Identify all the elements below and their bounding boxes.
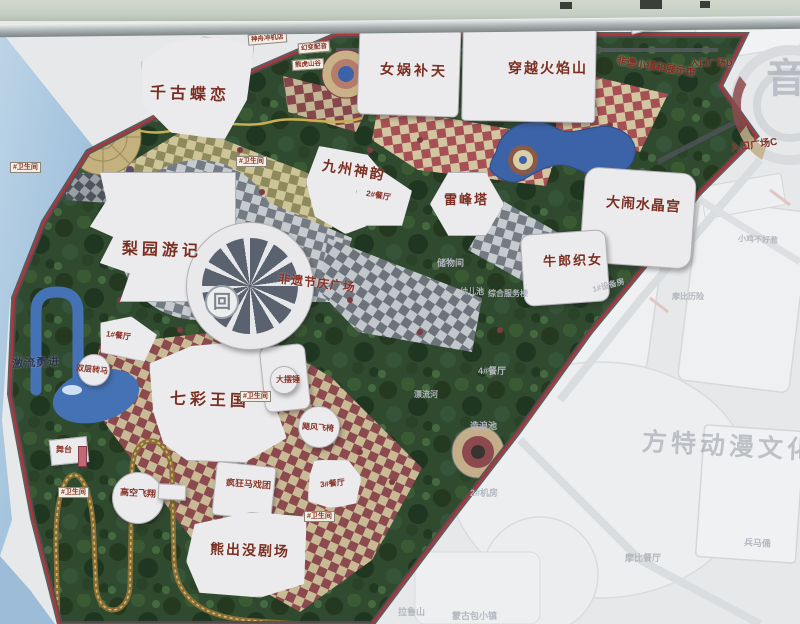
building-gaokong-tail	[158, 483, 187, 500]
board-clip-mark	[640, 0, 662, 9]
attraction-label-qicai-wangguo: 七彩王国	[170, 385, 251, 412]
faded-label-mobilixian: 摩比历险	[672, 291, 704, 302]
faded-label-youerchi: 幼儿池	[460, 286, 484, 297]
watermark-side: 音	[766, 46, 800, 104]
faded-label-zonghefuwu: 综合服务楼	[488, 288, 528, 299]
small-pink-sign	[78, 446, 87, 467]
attraction-label-xiongchumo: 熊出没剧场	[210, 539, 291, 562]
faded-label-piaoliuhe: 漂流河	[414, 389, 438, 400]
ride-label-pendulum: 大摆锤	[276, 374, 300, 385]
toilet-tag: #卫生间	[304, 511, 335, 522]
attraction-label-qiangu-dielian: 千古蝶恋	[150, 79, 231, 106]
faded-label-xiaoji: 小鸡不好惹	[738, 233, 779, 246]
ride-tag-shangu: 熊虎山谷	[292, 58, 325, 71]
faded-label-restaurant-4: 4#餐厅	[478, 364, 506, 377]
attraction-label-jiliu-yongjin: 激流勇进	[12, 353, 61, 371]
faded-label-bingmayong: 兵马俑	[744, 535, 772, 549]
label-entry-plaza-d: 入口广场D	[690, 56, 733, 69]
attraction-label-niulang-zhinv: 牛郎织女	[543, 249, 604, 270]
attraction-label-chuanyue-huoyanshan: 穿越火焰山	[508, 58, 588, 78]
faded-label-zaolangchi: 造浪池	[470, 419, 497, 432]
attraction-label-leifengta: 雷峰塔	[444, 189, 489, 208]
board-clip-mark	[700, 1, 710, 8]
toilet-tag: #卫生间	[240, 391, 271, 402]
faded-label-menggubao: 蒙古包小镇	[452, 609, 497, 622]
faded-label-jifang-2: 2#机房	[470, 486, 498, 499]
ride-label-gaokong: 高空飞翔	[120, 485, 157, 500]
toilet-tag: #卫生间	[236, 156, 267, 167]
attraction-label-liyuan-youji: 梨园游记	[122, 235, 203, 262]
board-clip-mark	[560, 2, 572, 9]
faded-label-mobicanting: 摩比餐厅	[625, 551, 661, 564]
faded-label-lalushan: 拉鲁山	[398, 605, 425, 618]
faded-label-chuwujian: 储物间	[437, 256, 464, 269]
ride-label-flying-chairs: 飓风飞椅	[302, 421, 335, 434]
attraction-label-nuwa-butian: 女娲补天	[380, 59, 449, 81]
toilet-tag: #卫生间	[10, 162, 41, 173]
park-map-photo: 回 千古蝶恋 女娲补天 穿越火焰山 九州神韵 雷峰塔 大闹水晶宫 牛郎织女 梨园…	[0, 0, 800, 624]
plaza-medallion: 回	[205, 285, 239, 319]
toilet-tag: #卫生间	[58, 487, 89, 498]
ride-label-stage: 舞台	[56, 444, 72, 455]
